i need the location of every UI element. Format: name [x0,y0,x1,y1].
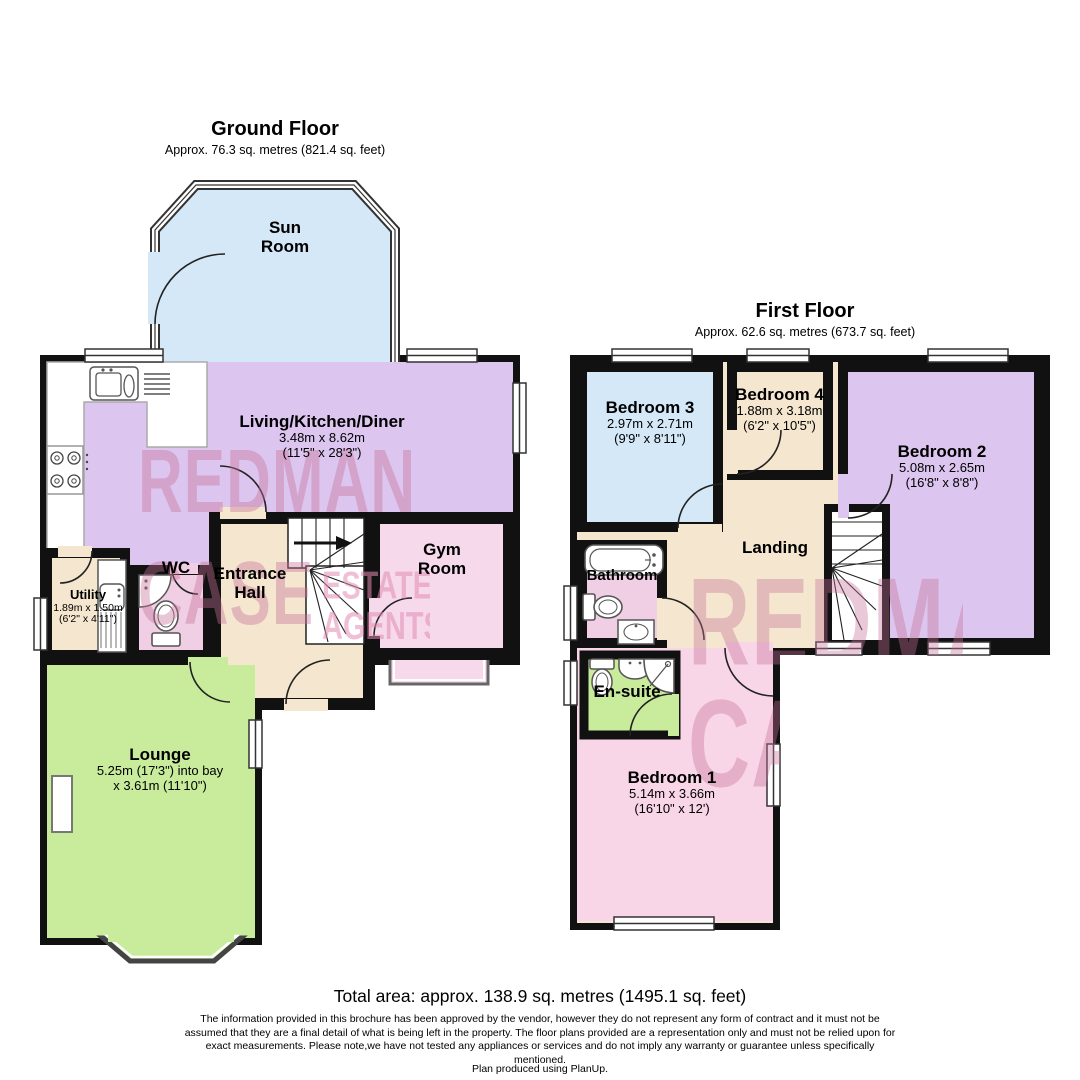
basin-icon [618,620,654,644]
bedroom-2-label: Bedroom 2 5.08m x 2.65m (16'8" x 8'8") [862,442,1022,490]
en-suite-label: En-suite [572,682,682,701]
first-floor-title: First Floor [655,300,955,322]
ground-floor-title: Ground Floor [125,118,425,140]
sun-room-shape [155,185,395,370]
utility-label: Utility 1.89m x 1.50m (6'2" x 4'11") [33,588,143,626]
first-floor-area: Approx. 62.6 sq. metres (673.7 sq. feet) [655,325,955,339]
first-floor-title-block: First Floor Approx. 62.6 sq. metres (673… [655,300,955,339]
kitchen-sink-icon [90,367,138,400]
toilet-icon [583,594,622,620]
produced-by-text: Plan produced using PlanUp. [0,1063,1080,1075]
sun-room-label: Sun Room [205,218,365,256]
floorplan-drawing [0,0,1080,1080]
ground-floor-area: Approx. 76.3 sq. metres (821.4 sq. feet) [125,143,425,157]
entrance-hall-label: Entrance Hall [195,564,305,602]
floorplan-page: REDMAN CASE ESTATE AGENTS REDMAN CASE Gr… [0,0,1080,1080]
gym-room-label: Gym Room [392,540,492,578]
landing-label: Landing [705,538,845,557]
hob-icon [47,446,88,494]
disclaimer-text: The information provided in this brochur… [180,1013,900,1068]
lounge-bay-window [103,926,241,961]
gym-room [374,518,509,654]
lounge-room [47,665,255,938]
toilet-icon [152,601,180,646]
ground-floor-title-block: Ground Floor Approx. 76.3 sq. metres (82… [125,118,425,157]
bedroom-4-label: Bedroom 4 1.88m x 3.18m (6'2" x 10'5") [712,385,847,433]
bedroom-1-label: Bedroom 1 5.14m x 3.66m (16'10" x 12') [592,768,752,816]
living-kitchen-diner-label: Living/Kitchen/Diner 3.48m x 8.62m (11'5… [182,412,462,460]
bathroom-label: Bathroom [566,568,678,585]
bedroom-3-room [582,367,718,527]
total-area-text: Total area: approx. 138.9 sq. metres (14… [0,986,1080,1007]
lounge-label: Lounge 5.25m (17'3") into bay x 3.61m (1… [55,745,265,793]
staircase [828,508,886,644]
bedroom-3-label: Bedroom 3 2.97m x 2.71m (9'9" x 8'11") [575,398,725,446]
